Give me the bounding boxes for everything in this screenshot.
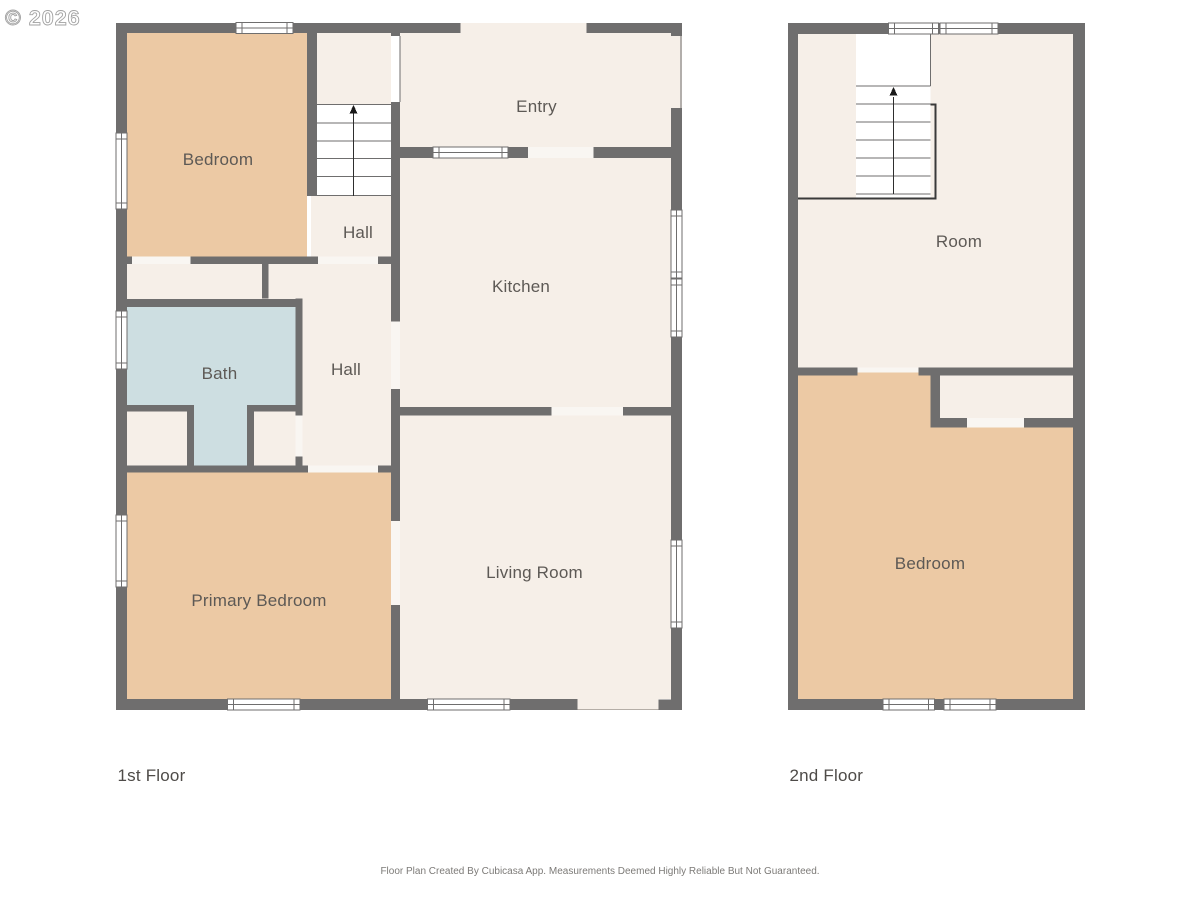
- svg-text:Primary Bedroom: Primary Bedroom: [191, 591, 326, 610]
- svg-text:Bedroom: Bedroom: [895, 554, 965, 573]
- svg-text:2nd Floor: 2nd Floor: [790, 766, 864, 785]
- svg-text:Hall: Hall: [343, 223, 373, 242]
- svg-text:Hall: Hall: [331, 360, 361, 379]
- svg-text:Floor Plan Created By Cubicasa: Floor Plan Created By Cubicasa App. Meas…: [380, 866, 819, 877]
- svg-text:Kitchen: Kitchen: [492, 277, 550, 296]
- svg-text:Bedroom: Bedroom: [183, 150, 253, 169]
- svg-text:Bath: Bath: [202, 364, 238, 383]
- svg-text:© 2026: © 2026: [5, 6, 81, 30]
- svg-text:Living Room: Living Room: [486, 563, 583, 582]
- svg-text:Room: Room: [936, 232, 982, 251]
- svg-text:1st Floor: 1st Floor: [118, 766, 186, 785]
- svg-text:Entry: Entry: [516, 97, 557, 116]
